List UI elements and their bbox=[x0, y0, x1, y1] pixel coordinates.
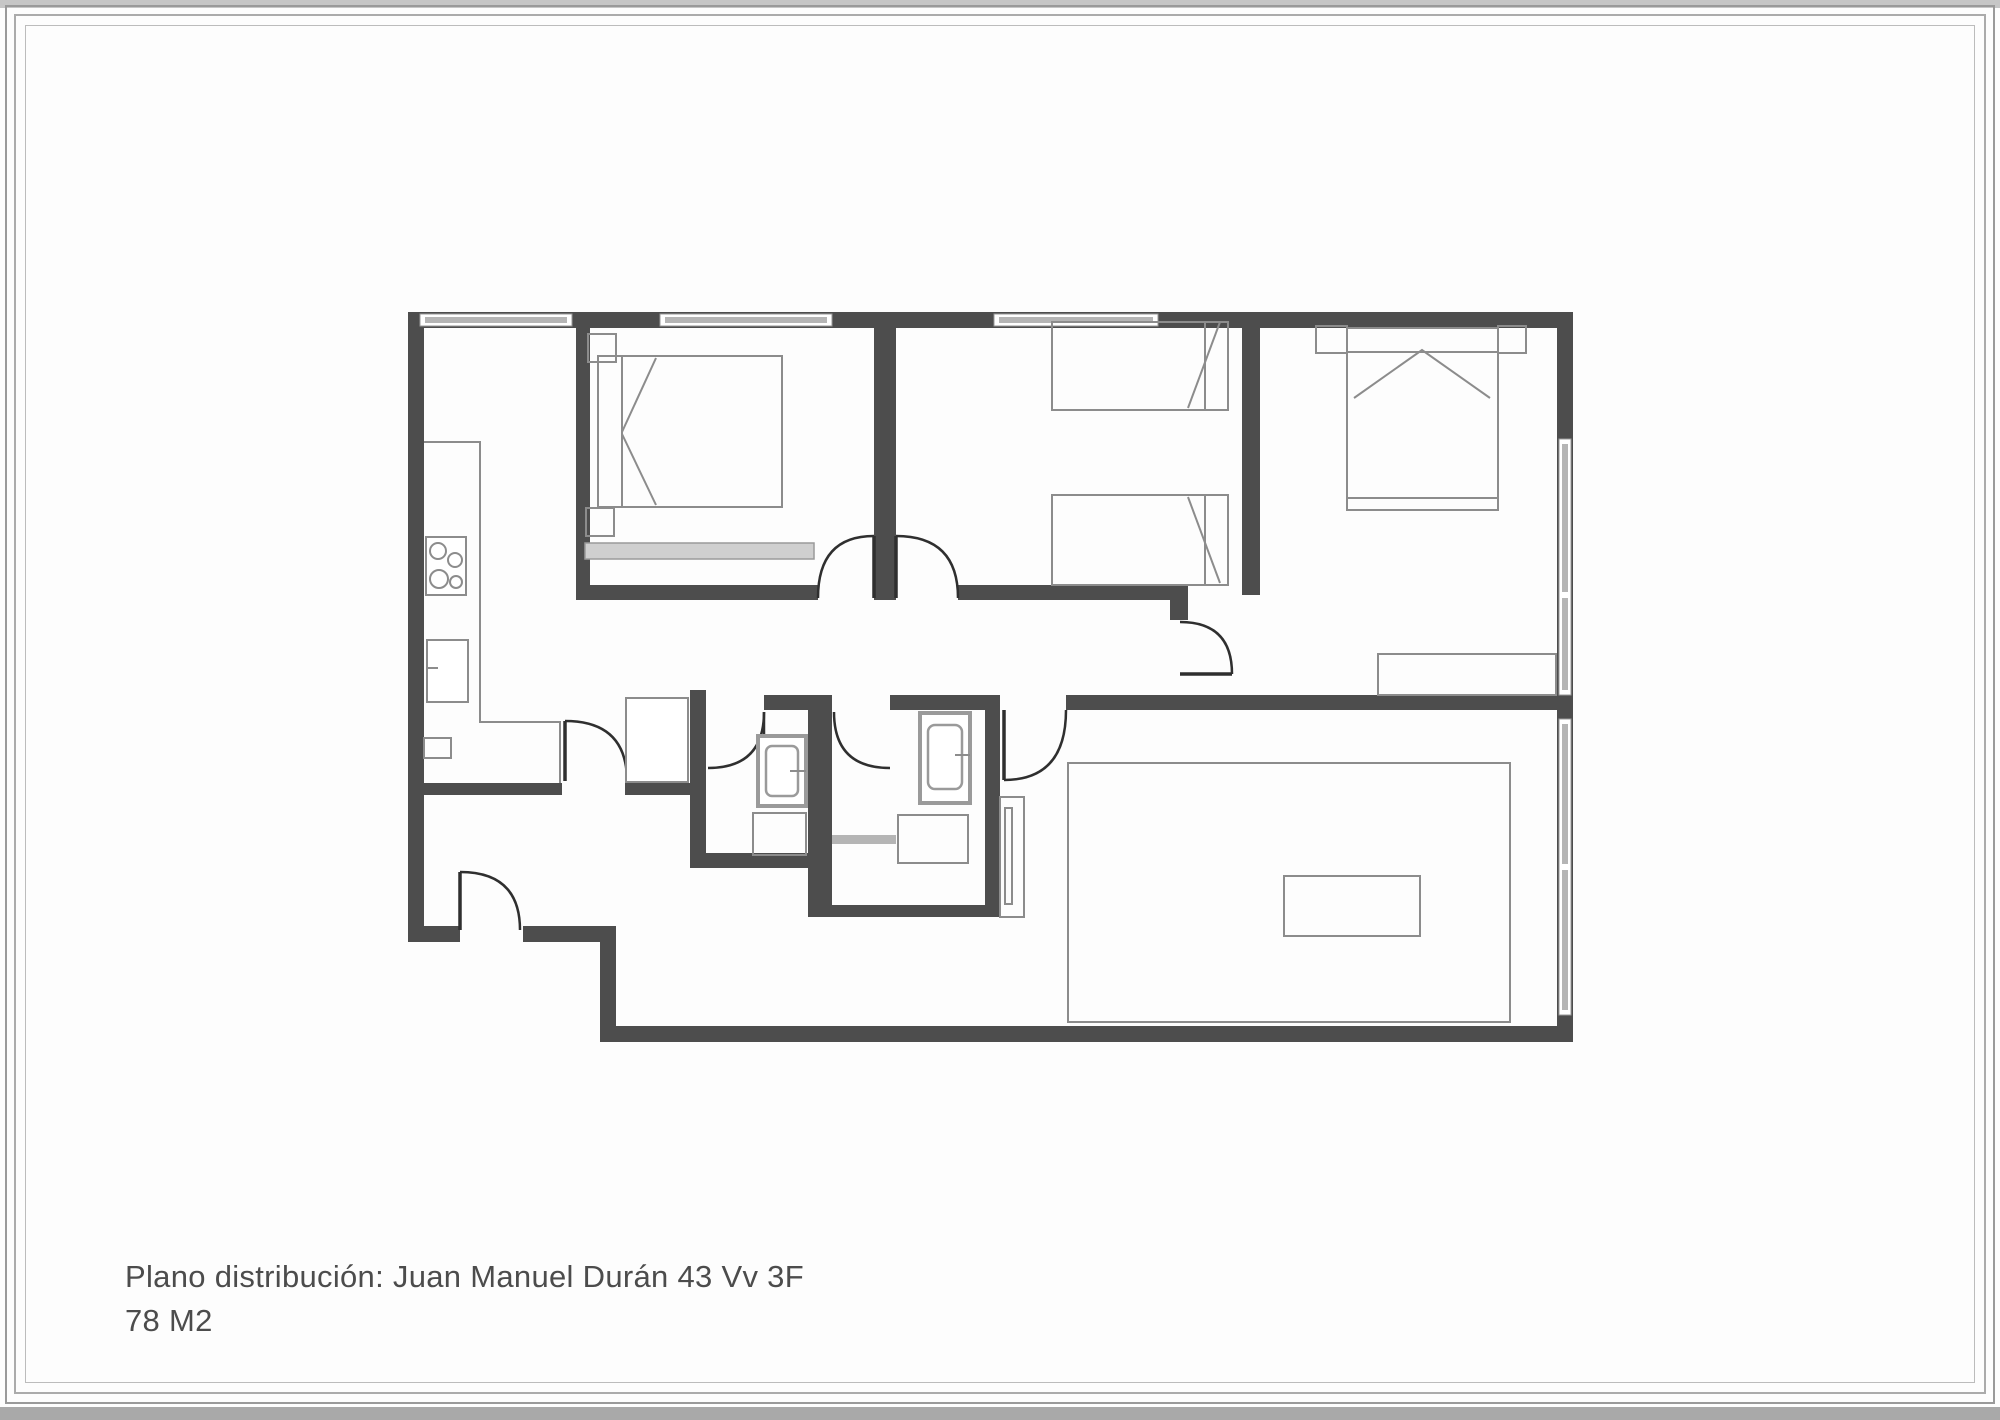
bedroom2-door bbox=[896, 536, 958, 598]
bedroom1-door bbox=[818, 536, 874, 598]
bed1-fold-line bbox=[622, 434, 656, 505]
bedroom3-furniture bbox=[1316, 326, 1556, 695]
entry-door bbox=[460, 872, 520, 930]
wall-bedroom1-bedroom2 bbox=[874, 328, 896, 600]
kitchen-sink bbox=[427, 640, 468, 702]
kitchen-door bbox=[565, 721, 627, 781]
wall-bathroom2-right bbox=[985, 695, 1000, 917]
bathroom2-door bbox=[834, 712, 890, 768]
nightstand bbox=[1316, 326, 1347, 353]
rug bbox=[1068, 763, 1510, 1022]
wall-step-vertical bbox=[600, 926, 616, 1036]
wall-kitchen-south-b bbox=[625, 783, 690, 795]
bathroom2-fixtures bbox=[832, 713, 970, 863]
wall-bathroom2-south bbox=[832, 905, 1000, 917]
bedroom3-door bbox=[1180, 622, 1232, 674]
wall-bathroom1-top bbox=[764, 695, 808, 710]
nightstand bbox=[588, 334, 616, 362]
nightstand bbox=[1498, 326, 1526, 353]
wall-exterior-top bbox=[408, 312, 1573, 328]
single-bed-a bbox=[1052, 322, 1228, 410]
wall-exterior-bottom bbox=[600, 1026, 1573, 1042]
basin-1 bbox=[753, 813, 806, 855]
living-window-east bbox=[1559, 719, 1571, 1015]
page: Plano distribución: Juan Manuel Durán 43… bbox=[0, 0, 2000, 1420]
bedroom1-furniture bbox=[585, 334, 814, 559]
double-bed-3 bbox=[1347, 328, 1498, 510]
wall-kitchen-south-a bbox=[408, 783, 562, 795]
wall-bedroom3-stub bbox=[1170, 585, 1188, 620]
wall-bedroom2-south bbox=[958, 585, 1170, 600]
kitchen-furniture bbox=[424, 442, 688, 783]
single-bed-b bbox=[1052, 495, 1228, 585]
living-door bbox=[1004, 710, 1066, 780]
fridge bbox=[626, 698, 688, 782]
walls bbox=[408, 312, 1573, 1042]
double-bed-1 bbox=[598, 356, 782, 507]
wardrobe bbox=[585, 543, 814, 559]
kitchen-counter bbox=[424, 442, 560, 783]
caption: Plano distribución: Juan Manuel Durán 43… bbox=[125, 1255, 804, 1343]
kitchen-window-top bbox=[420, 314, 572, 326]
wall-corridor-living bbox=[1066, 695, 1557, 710]
basin-2 bbox=[898, 815, 968, 863]
wall-exterior-left bbox=[408, 312, 424, 942]
caption-line1: Plano distribución: Juan Manuel Durán 43… bbox=[125, 1255, 804, 1299]
bedroom3-window-east bbox=[1559, 439, 1571, 695]
bathroom1-fixtures bbox=[753, 736, 806, 855]
wall-bathroom2-top bbox=[890, 695, 1000, 710]
duct-cabinet-inner bbox=[1005, 808, 1012, 904]
bed3-pillow-chevron bbox=[1354, 350, 1490, 398]
bed1-fold-line bbox=[622, 358, 656, 432]
wall-bathrooms-shared bbox=[808, 695, 832, 917]
bedroom2-window-top bbox=[994, 314, 1158, 326]
desk bbox=[1378, 654, 1556, 695]
bedroom1-window-top bbox=[660, 314, 832, 326]
shower-screen bbox=[832, 835, 896, 844]
wall-hall-south-a bbox=[408, 926, 460, 942]
wall-bedroom2-bedroom3 bbox=[1242, 328, 1260, 595]
nightstand bbox=[586, 508, 614, 536]
wall-hall-south-b bbox=[523, 926, 603, 942]
floor-plan bbox=[0, 0, 2000, 1420]
wall-bedroom1-south bbox=[576, 585, 818, 600]
kitchen-cabinet bbox=[424, 738, 451, 758]
living-furniture bbox=[1000, 763, 1510, 1022]
caption-line2: 78 M2 bbox=[125, 1299, 804, 1343]
bathroom1-door bbox=[708, 712, 764, 768]
coffee-table bbox=[1284, 876, 1420, 936]
wall-bathroom1-left bbox=[690, 690, 706, 868]
bedroom2-furniture bbox=[1052, 322, 1228, 585]
toilet-2-bowl bbox=[928, 725, 962, 789]
